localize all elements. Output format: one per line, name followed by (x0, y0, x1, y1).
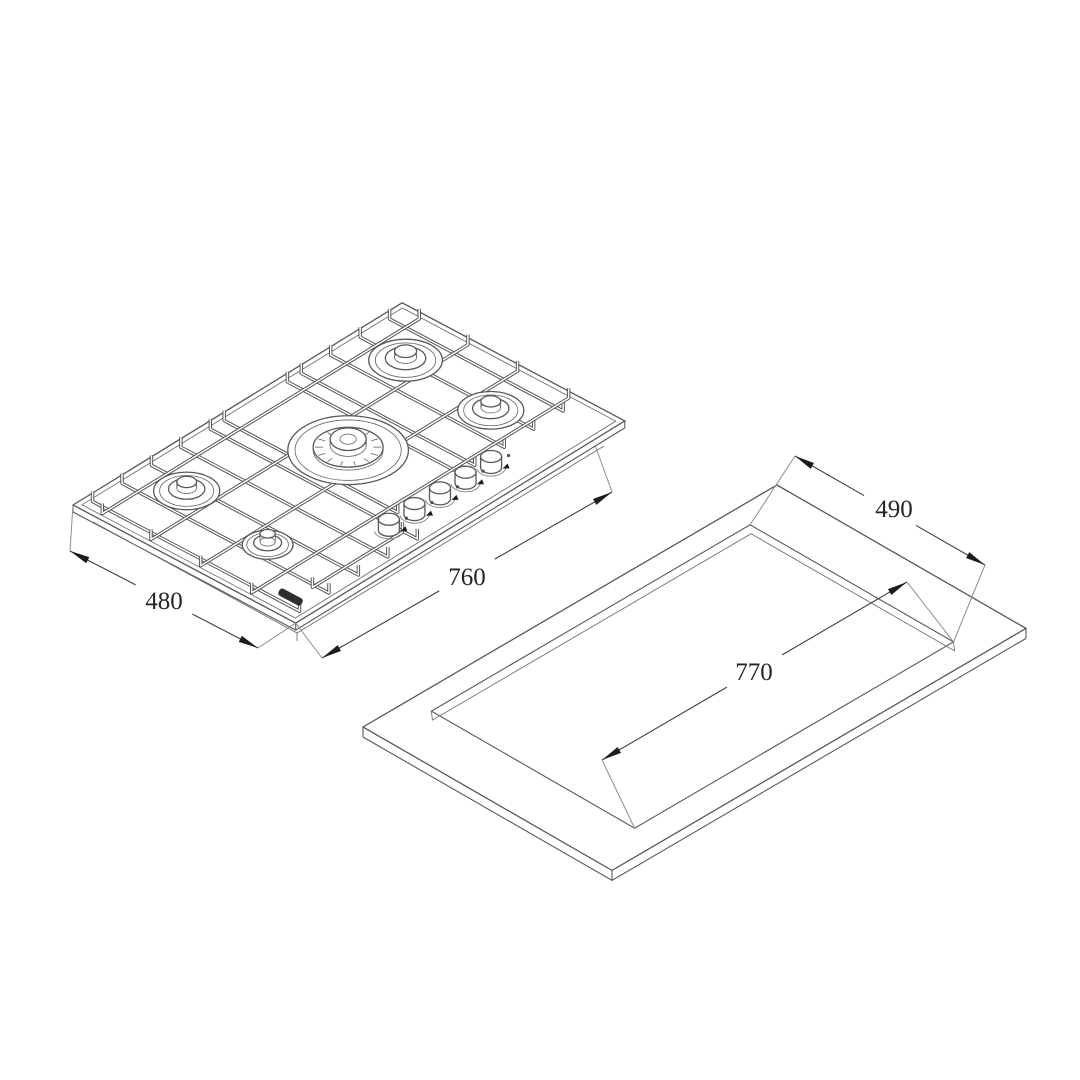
dim-label-cutout-depth: 490 (875, 496, 913, 523)
installation-diagram-page: 760 480 770 490 (0, 0, 1080, 1080)
dim-label-cutout-width: 770 (735, 659, 773, 686)
dim-label-cooktop-width: 760 (448, 564, 486, 591)
cutout-drawing (363, 485, 1026, 880)
dim-label-cooktop-depth: 480 (145, 588, 183, 615)
technical-diagram: 760 480 770 490 (0, 0, 1080, 1080)
